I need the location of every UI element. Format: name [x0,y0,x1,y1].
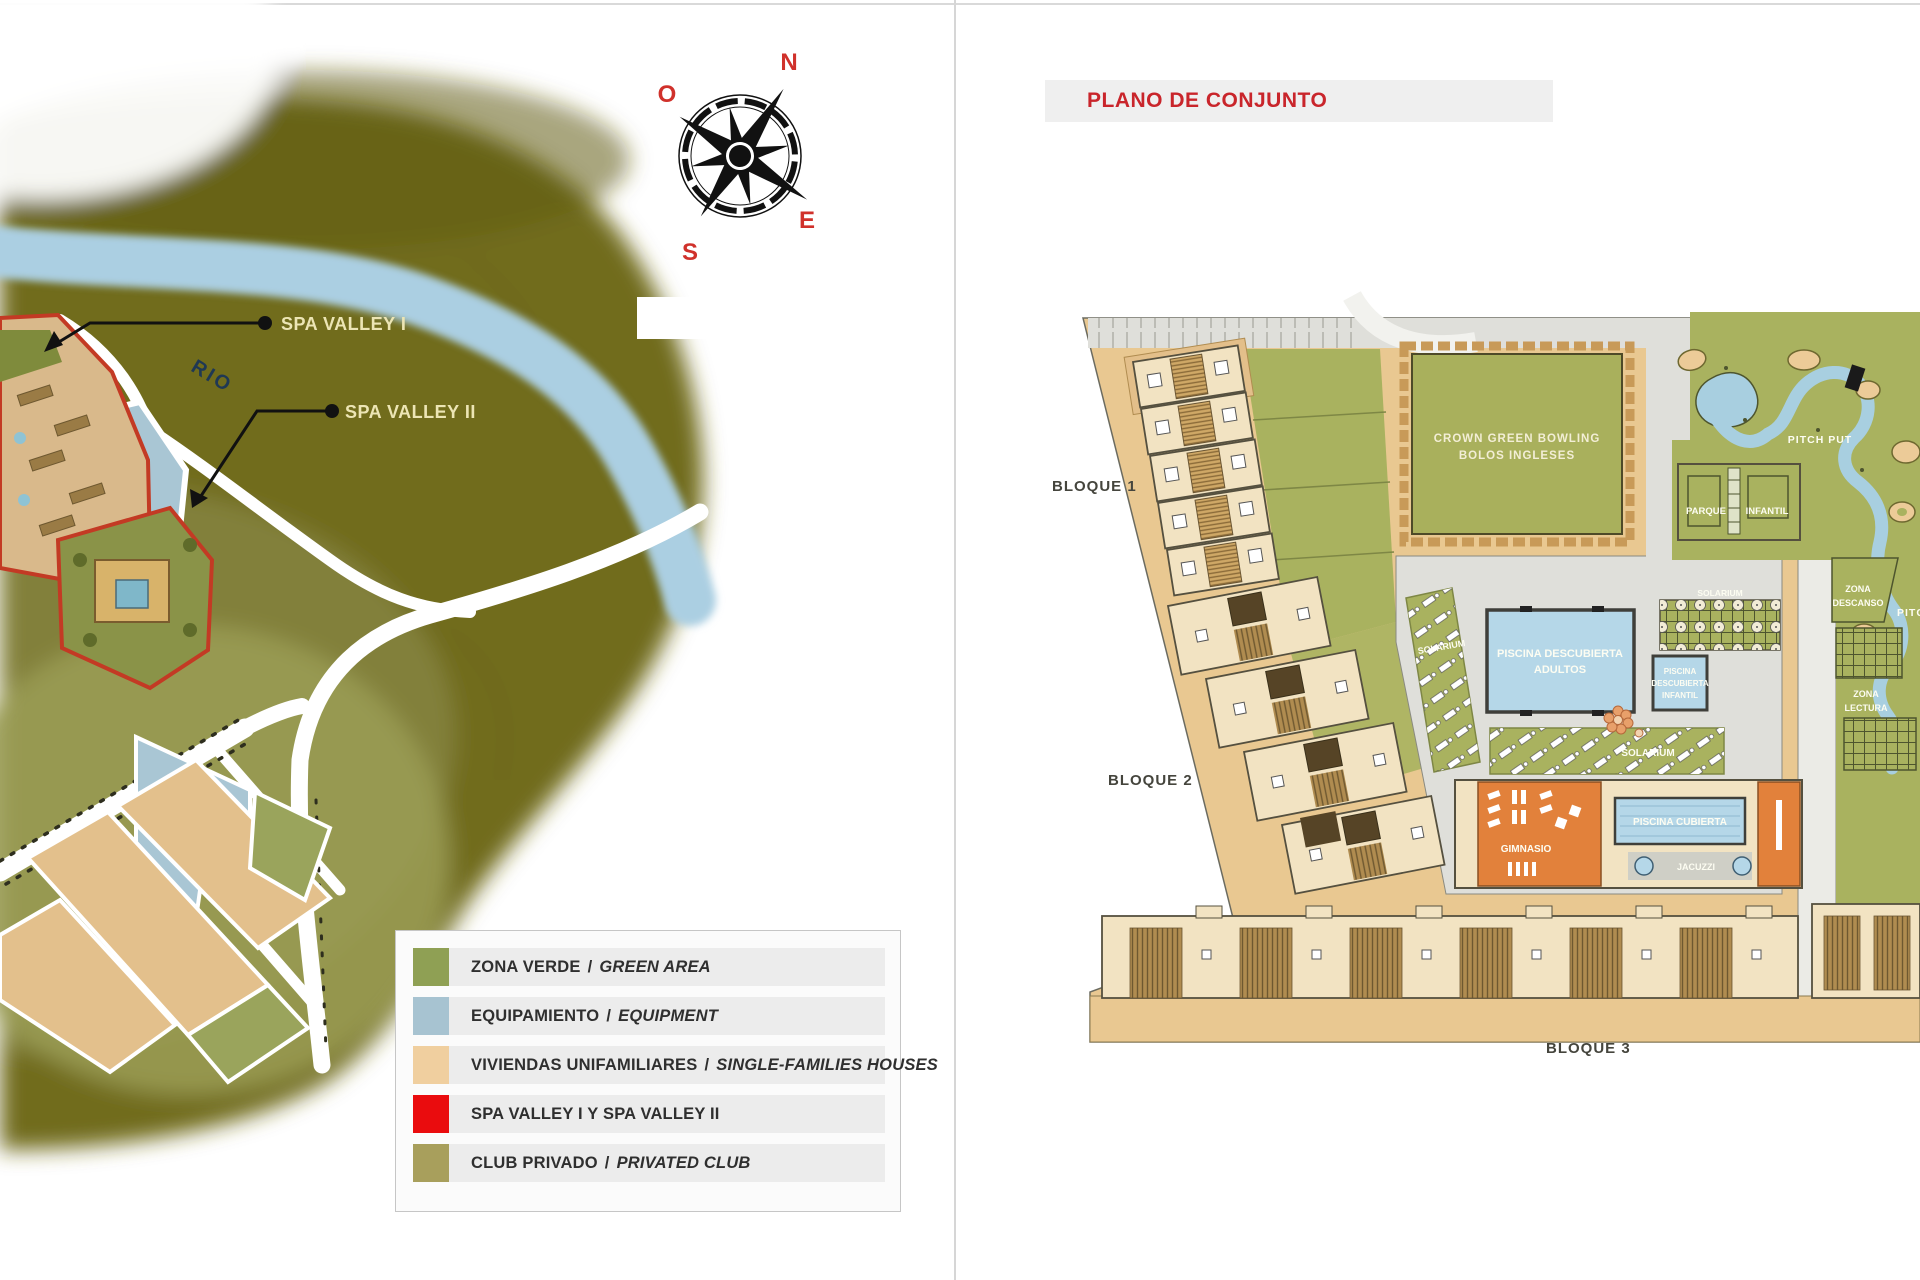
compass-o: O [658,81,677,108]
gimnasio-label: GIMNASIO [1501,844,1552,855]
piscina-infantil-label-3: INFANTIL [1662,691,1698,700]
legend-label: CLUB PRIVADO/PRIVATED CLUB [471,1154,751,1173]
bloque-3-buildings [1090,904,1920,1042]
plan-title-bar: PLANO DE CONJUNTO [1045,80,1553,122]
spa-building: GIMNASIO PISCINA CUBIERTA JACUZZI [1455,780,1802,888]
legend-swatch-blue [413,997,449,1035]
blank-label-box [637,297,721,339]
solarium-label-pergola: SOLARIUM [1697,588,1742,598]
compass-rose: N O E S [640,49,850,266]
site-plan: CROWN GREEN BOWLING BOLOS INGLESES [1083,296,1920,1042]
legend-label: VIVIENDAS UNIFAMILIARES/SINGLE-FAMILIES … [471,1056,938,1075]
piscina-adultos-label-2: ADULTOS [1534,664,1586,676]
legend-label: ZONA VERDE/GREEN AREA [471,958,711,977]
gimnasio [1478,782,1601,886]
piscina-descubierta-infantil: PISCINA DESCUBIERTA INFANTIL [1651,656,1708,710]
zona-lectura-label-1: ZONA [1853,689,1879,699]
solarium-south: SOLARIUM [1490,728,1724,774]
pitch-put-label: PITCH PUT [1788,434,1852,446]
map-legend: ZONA VERDE/GREEN AREA EQUIPAMIENTO/EQUIP… [395,930,901,1212]
legend-item-viviendas: VIVIENDAS UNIFAMILIARES/SINGLE-FAMILIES … [413,1046,885,1084]
legend-swatch-green [413,948,449,986]
jacuzzi-label: JACUZZI [1677,862,1715,872]
zona-lectura-label-2: LECTURA [1845,703,1888,713]
legend-item-equipamiento: EQUIPAMIENTO/EQUIPMENT [413,997,885,1035]
legend-swatch-olive [413,1144,449,1182]
solarium-label-south: SOLARIUM [1621,748,1674,759]
plan-title: PLANO DE CONJUNTO [1087,89,1327,113]
legend-label: SPA VALLEY I Y SPA VALLEY II [471,1105,734,1124]
page-divider [954,0,956,1280]
parque-label-2: INFANTIL [1746,506,1789,517]
legend-item-club-privado: CLUB PRIVADO/PRIVATED CLUB [413,1144,885,1182]
brochure-spread: SPA VALLEY I SPA VALLEY II RIO [0,0,1920,1280]
zona-descanso-label-1: ZONA [1845,584,1871,594]
bloque-1-label: BLOQUE 1 [1052,478,1137,495]
zona-descanso-label-2: DESCANSO [1832,598,1883,608]
legend-label: EQUIPAMIENTO/EQUIPMENT [471,1007,718,1026]
spa-valley-1-label: SPA VALLEY I [281,314,406,334]
compass-s: S [682,239,698,266]
piscina-cubierta-label: PISCINA CUBIERTA [1633,817,1727,828]
pitch-put-label-2: PITCH PUT [1897,607,1920,619]
parque-infantil: PARQUE INFANTIL [1678,464,1800,540]
legend-item-zona-verde: ZONA VERDE/GREEN AREA [413,948,885,986]
piscina-infantil-label-1: PISCINA [1664,667,1697,676]
compass-n: N [780,49,797,76]
piscina-descubierta-adultos: PISCINA DESCUBIERTA ADULTOS [1487,606,1634,716]
crown-green-bowling: CROWN GREEN BOWLING BOLOS INGLESES [1404,346,1630,542]
legend-swatch-tan [413,1046,449,1084]
spa-valley-2-label: SPA VALLEY II [345,402,476,422]
legend-item-spa-valley: SPA VALLEY I Y SPA VALLEY II [413,1095,885,1133]
bloque-2-label: BLOQUE 2 [1108,772,1193,789]
piscina-infantil-label-2: DESCUBIERTA [1651,679,1708,688]
map-and-plan-artwork: SPA VALLEY I SPA VALLEY II RIO [0,0,1920,1280]
bowling-label-2: BOLOS INGLESES [1459,450,1575,462]
bloque-3-label: BLOQUE 3 [1546,1040,1631,1057]
compass-e: E [799,207,815,234]
legend-swatch-red [413,1095,449,1133]
parque-label-1: PARQUE [1686,506,1726,517]
bowling-label-1: CROWN GREEN BOWLING [1434,433,1601,445]
piscina-adultos-label-1: PISCINA DESCUBIERTA [1497,648,1623,660]
